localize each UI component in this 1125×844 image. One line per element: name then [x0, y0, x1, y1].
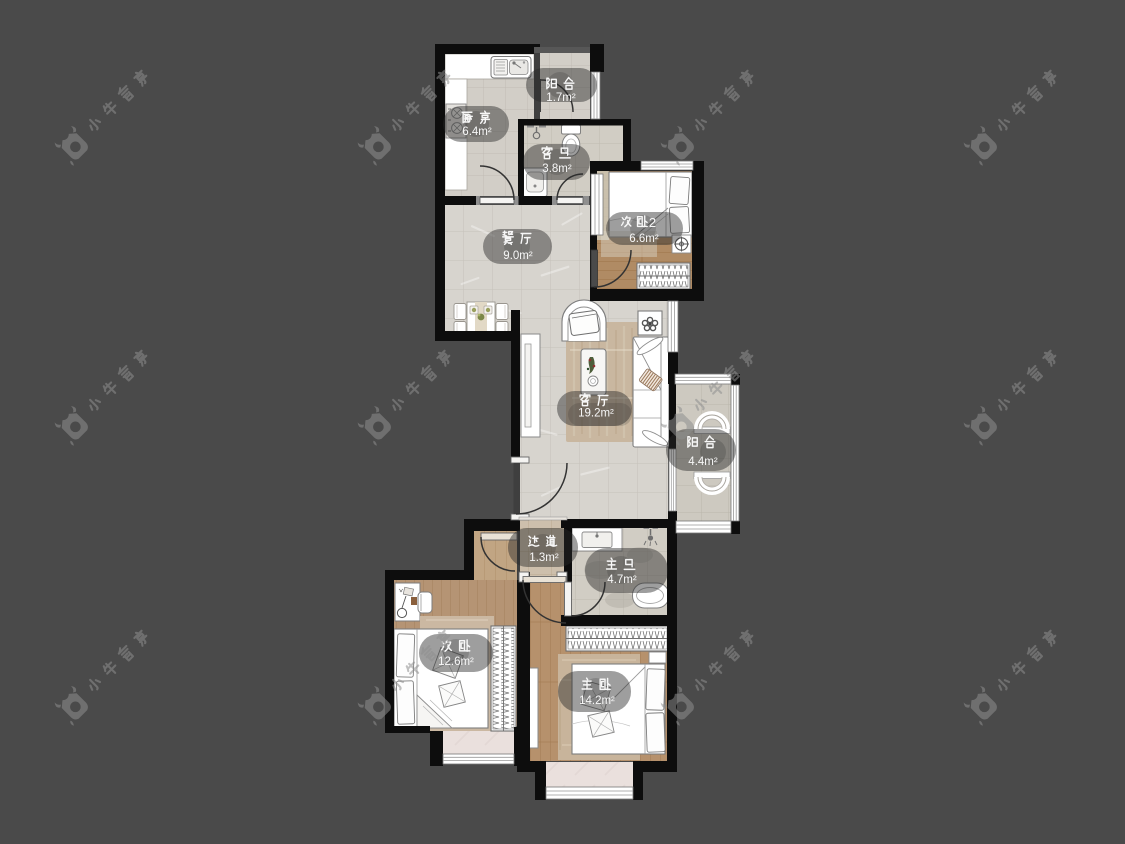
- svg-text:4.7m²: 4.7m²: [607, 574, 637, 586]
- svg-text:14.2m²: 14.2m²: [579, 695, 615, 707]
- svg-text:6.4m²: 6.4m²: [462, 126, 492, 138]
- svg-text:2: 2: [649, 215, 656, 230]
- svg-text:1.7m²: 1.7m²: [546, 92, 576, 104]
- svg-text:19.2m²: 19.2m²: [578, 408, 614, 420]
- svg-text:3.8m²: 3.8m²: [542, 163, 572, 175]
- svg-text:12.6m²: 12.6m²: [438, 656, 474, 668]
- svg-text:4.4m²: 4.4m²: [688, 456, 718, 468]
- svg-text:9.0m²: 9.0m²: [503, 250, 533, 262]
- svg-text:6.6m²: 6.6m²: [629, 233, 659, 245]
- svg-text:1.3m²: 1.3m²: [529, 552, 559, 564]
